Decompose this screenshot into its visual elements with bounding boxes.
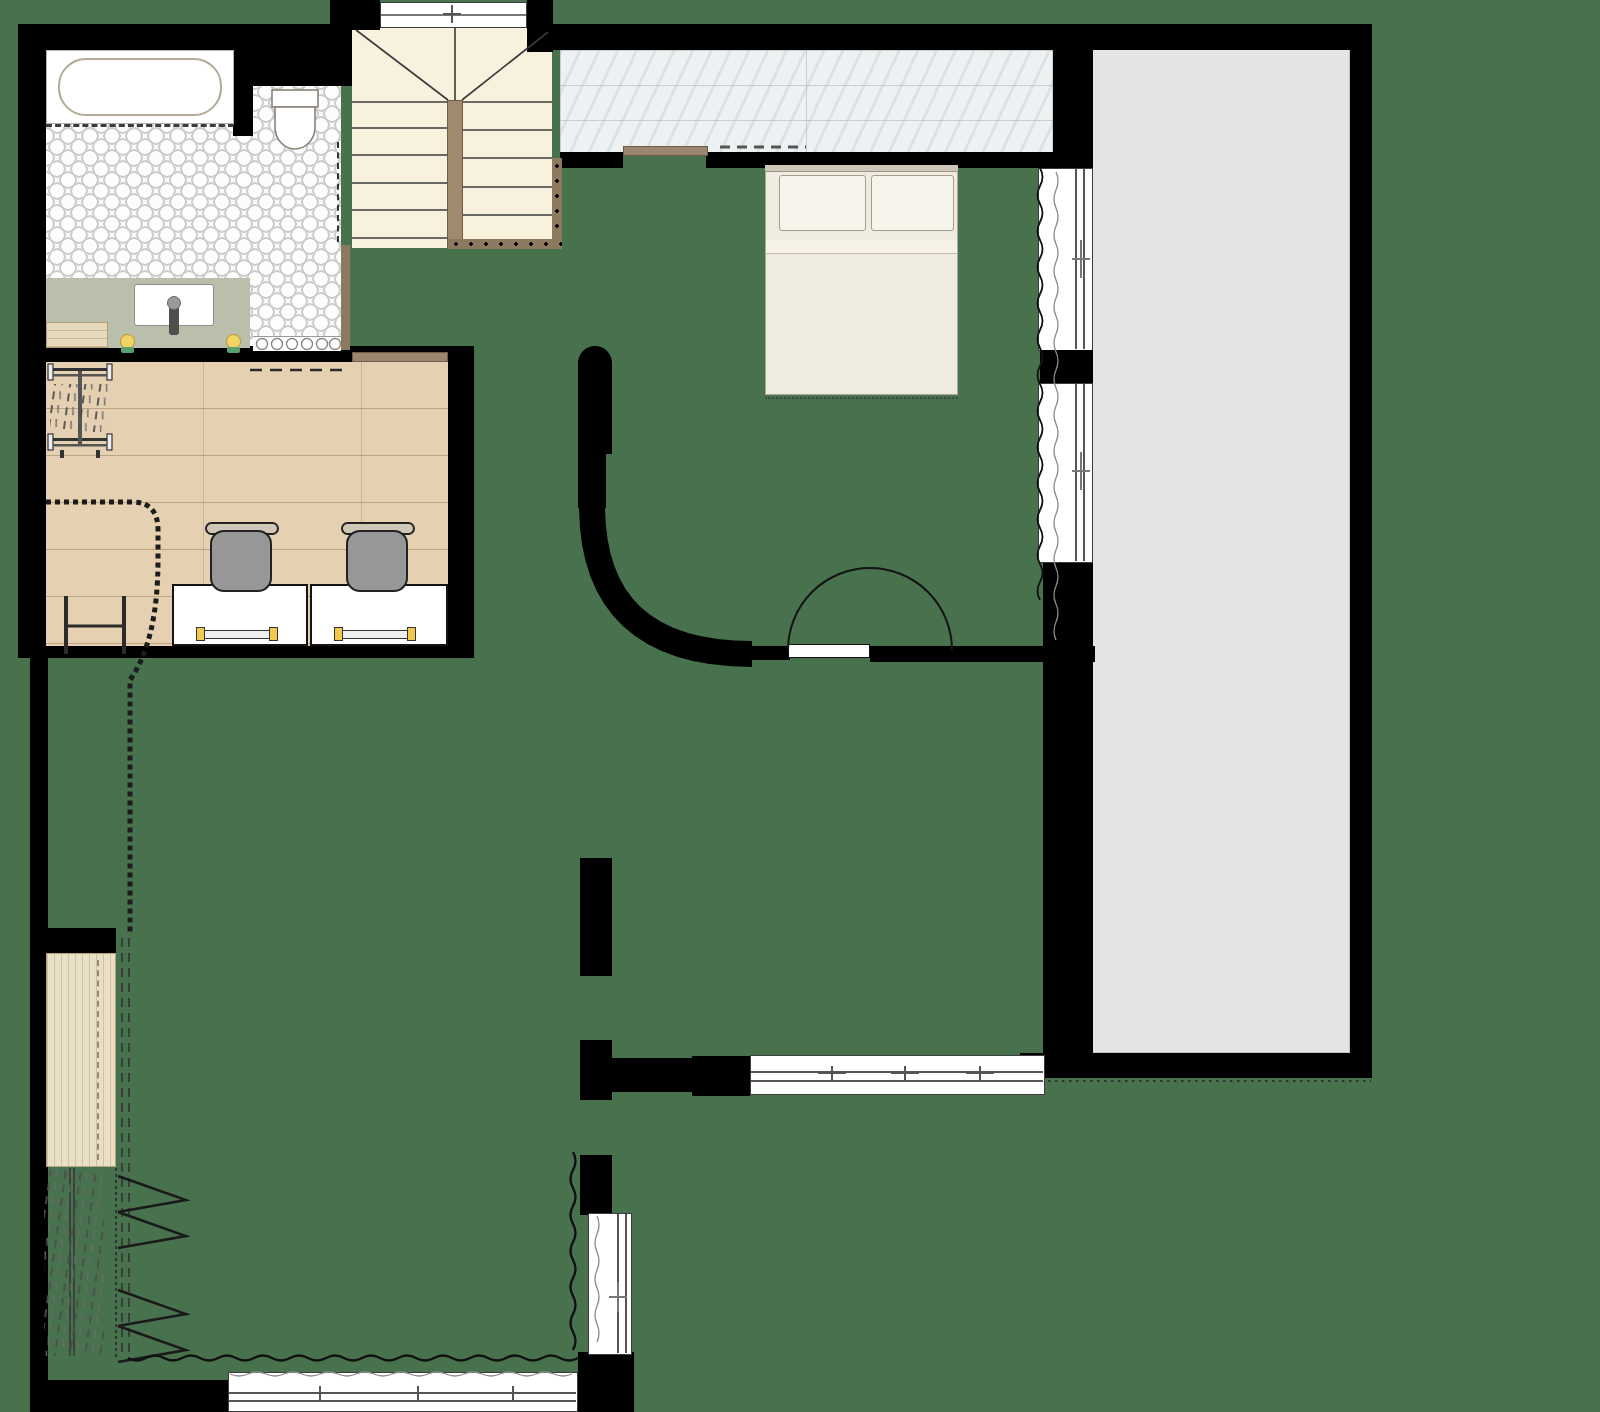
window-frame-line	[617, 1214, 619, 1353]
wardrobe-centerline	[97, 960, 99, 1160]
desk-lamp-cap	[407, 627, 416, 641]
clothes-hatch	[44, 1170, 104, 1356]
pillow	[779, 175, 866, 231]
window-frame-line	[1083, 169, 1085, 349]
door-swing-arc	[788, 568, 952, 650]
floor-plan	[0, 0, 1600, 1412]
window-mullion	[381, 14, 526, 16]
candle-base	[121, 347, 134, 353]
office-chair-seat	[210, 530, 272, 592]
terrace-void	[1090, 48, 1350, 1053]
wall	[578, 1352, 634, 1412]
bathroom-door-line	[337, 142, 339, 242]
wall	[30, 1380, 230, 1412]
pillow	[871, 175, 954, 231]
wall	[1350, 24, 1372, 1078]
stair-stringer	[447, 100, 463, 248]
office-chair-seat	[346, 530, 408, 592]
bath-mat	[46, 322, 108, 348]
desk-lamp-bar	[340, 630, 410, 639]
window-frame-line	[1075, 169, 1077, 349]
wall	[1040, 350, 1093, 383]
bedroom-window	[1038, 168, 1093, 351]
wall	[252, 48, 352, 86]
bedroom-sliding-window	[750, 1055, 1045, 1095]
wall	[580, 1058, 698, 1092]
bottle-shelf	[253, 336, 341, 351]
desk-lamp-bar	[202, 630, 272, 639]
shower-screen-dashed	[46, 124, 234, 127]
faucet-knob	[167, 296, 181, 310]
window-frame-line	[1075, 384, 1077, 561]
wall	[548, 24, 1372, 50]
office-shelf	[352, 352, 448, 362]
wall	[744, 646, 790, 660]
wall	[18, 24, 352, 50]
hangers	[118, 1176, 186, 1362]
window-track	[229, 1400, 576, 1402]
window-track	[229, 1392, 576, 1394]
window-track	[751, 1071, 1043, 1073]
desk-lamp-cap	[334, 627, 343, 641]
stair-railing	[552, 158, 562, 248]
desk-lamp-cap	[196, 627, 205, 641]
clothes-rail	[70, 1168, 74, 1356]
wall-tub-divider	[233, 48, 253, 136]
wall	[448, 346, 474, 658]
wall	[18, 646, 474, 658]
curtain	[571, 1152, 576, 1350]
candle-base	[227, 347, 240, 353]
wall	[578, 450, 606, 508]
bathtub	[58, 58, 222, 116]
wall	[580, 858, 612, 976]
wall	[578, 346, 612, 454]
window-track	[751, 1080, 1043, 1082]
window-frame-line	[625, 1214, 627, 1353]
duvet-fold	[766, 240, 957, 254]
bed-headboard	[765, 165, 958, 172]
stair-window	[380, 2, 527, 28]
window-handle	[609, 240, 1090, 1312]
dressing-sliding-window	[228, 1372, 578, 1412]
wardrobe-panel	[46, 953, 116, 1167]
wall	[1043, 563, 1093, 1078]
wall	[30, 928, 116, 953]
stair-railing	[448, 239, 562, 249]
bed-foot-ticks	[765, 397, 958, 399]
bedroom-window	[1038, 383, 1093, 563]
window-handle	[306, 1066, 994, 1400]
curtain	[128, 1356, 578, 1361]
wall	[560, 152, 623, 168]
window-frame-line	[1083, 384, 1085, 561]
wall	[330, 0, 380, 30]
wall	[580, 1155, 612, 1215]
dressing-window	[588, 1213, 632, 1355]
desk-lamp-cap	[269, 627, 278, 641]
door-leaf	[788, 644, 870, 658]
closet-shelf	[623, 146, 708, 156]
wardrobe-marble-floor	[560, 50, 1053, 156]
wall	[18, 24, 46, 656]
bathroom-wood-trim	[341, 245, 350, 350]
curved-wall	[592, 505, 752, 654]
wall	[692, 1056, 750, 1096]
